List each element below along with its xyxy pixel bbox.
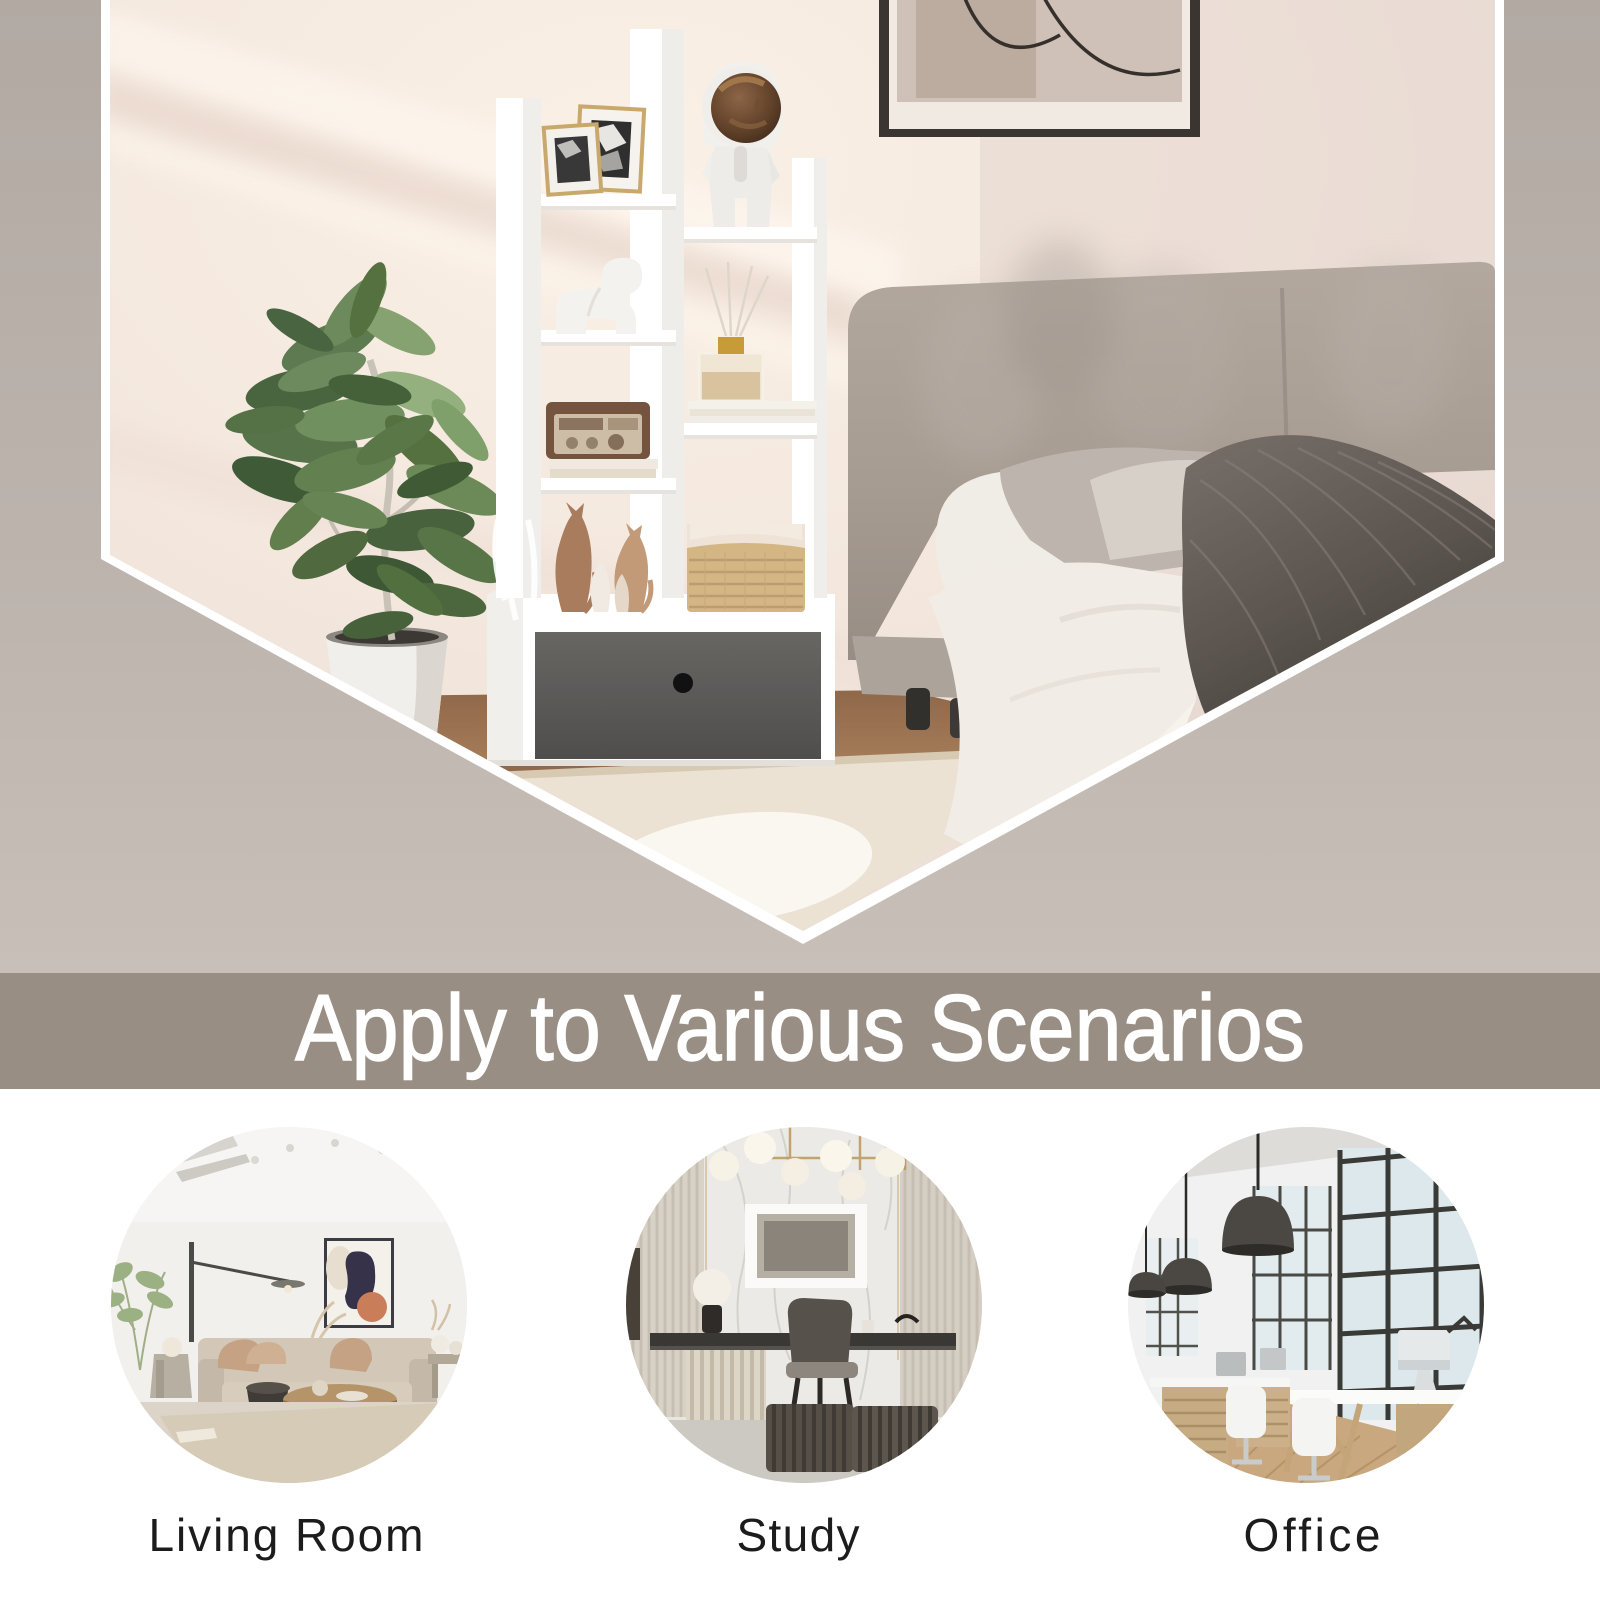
svg-text:Apply to Various Scenarios: Apply to Various Scenarios: [295, 975, 1305, 1080]
svg-text:Study: Study: [737, 1509, 860, 1561]
svg-text:Living Room: Living Room: [149, 1509, 424, 1561]
